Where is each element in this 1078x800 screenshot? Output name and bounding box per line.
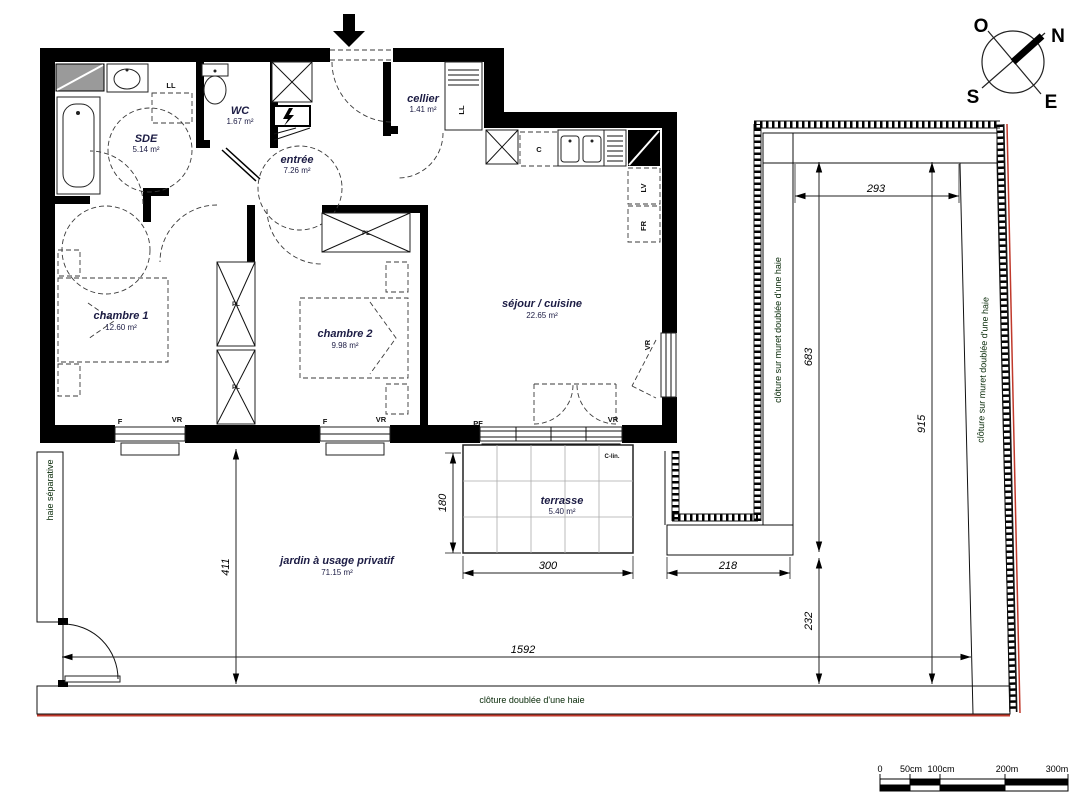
- area-sejour: 22.65 m²: [526, 311, 558, 320]
- scale-100: 100cm: [927, 764, 954, 774]
- floor-plan-canvas: 293 683 232 915 218 300 180 411 1592 SDE…: [0, 0, 1078, 800]
- label-sde: SDE: [135, 133, 158, 145]
- area-chambre1: 12.60 m²: [105, 323, 137, 332]
- label-ll-sde: LL: [166, 81, 176, 90]
- area-sde: 5.14 m²: [132, 145, 159, 154]
- compass-north: N: [1051, 26, 1065, 47]
- label-pl-2: PL: [232, 385, 240, 391]
- label-lintel-box: C-lin.: [605, 454, 620, 460]
- dim-terrace-width: 300: [539, 560, 558, 572]
- cellier-fixtures: [445, 62, 482, 130]
- label-f-1: F: [118, 417, 123, 426]
- label-terrasse: terrasse: [541, 495, 584, 507]
- label-vr-2: VR: [376, 415, 387, 424]
- dim-path-width: 218: [718, 560, 738, 572]
- dim-inner-width: 293: [866, 183, 886, 195]
- label-vr-3: VR: [608, 415, 619, 424]
- label-hedge-bottom: clôture doublée d'une haie: [479, 695, 584, 705]
- label-jardin: jardin à usage privatif: [278, 555, 395, 567]
- area-chambre2: 9.98 m²: [331, 341, 358, 350]
- window-sill-chambre2: [326, 443, 384, 455]
- area-jardin: 71.15 m²: [321, 568, 353, 577]
- window-sejour-east: [661, 333, 676, 397]
- label-entree: entrée: [280, 154, 313, 166]
- scale-50: 50cm: [900, 764, 922, 774]
- compass-east: E: [1045, 92, 1058, 113]
- label-fr: FR: [639, 220, 648, 231]
- scale-200: 200m: [996, 764, 1019, 774]
- label-pf: PF: [473, 419, 483, 428]
- window-sill-chambre1: [121, 443, 179, 455]
- compass-west: O: [974, 16, 989, 37]
- gate-leaf: [65, 676, 120, 682]
- dim-right-height: 915: [916, 414, 928, 433]
- toilet-bowl: [204, 76, 226, 104]
- dim-garden-width: 1592: [511, 644, 535, 656]
- label-cellier: cellier: [407, 93, 440, 105]
- label-vr-4: VR: [643, 339, 652, 350]
- area-entree: 7.26 m²: [283, 166, 310, 175]
- scale-300: 300m: [1046, 764, 1069, 774]
- label-hedge-middle: clôture sur muret doublée d'une haie: [773, 257, 783, 403]
- area-wc: 1.67 m²: [226, 117, 253, 126]
- compass-south: S: [967, 87, 980, 108]
- label-chambre2: chambre 2: [317, 328, 372, 340]
- label-ll-cellier: LL: [457, 105, 466, 115]
- dim-garden-height: 411: [220, 558, 232, 576]
- label-vr-1: VR: [172, 415, 183, 424]
- bathtub-inner: [63, 104, 94, 187]
- label-counter: C: [536, 145, 542, 154]
- washbasin: [114, 69, 140, 89]
- label-pl-3: PL: [362, 231, 370, 237]
- label-lv: LV: [639, 183, 648, 192]
- cellier-closet: [445, 62, 482, 130]
- scale-0: 0: [877, 764, 882, 774]
- label-sejour: séjour / cuisine: [502, 298, 582, 310]
- floor-plan-page: 293 683 232 915 218 300 180 411 1592 SDE…: [0, 0, 1078, 800]
- dim-inner-height: 683: [803, 347, 815, 366]
- label-wc: WC: [231, 105, 250, 117]
- label-pl-1: PL: [232, 302, 240, 308]
- dim-lower-height: 232: [803, 612, 815, 631]
- area-terrasse: 5.40 m²: [548, 507, 575, 516]
- dim-terrace-height: 180: [437, 493, 449, 512]
- label-hedge-left: haie séparative: [45, 459, 55, 520]
- label-chambre1: chambre 1: [93, 310, 148, 322]
- label-f-2: F: [323, 417, 328, 426]
- area-cellier: 1.41 m²: [409, 105, 436, 114]
